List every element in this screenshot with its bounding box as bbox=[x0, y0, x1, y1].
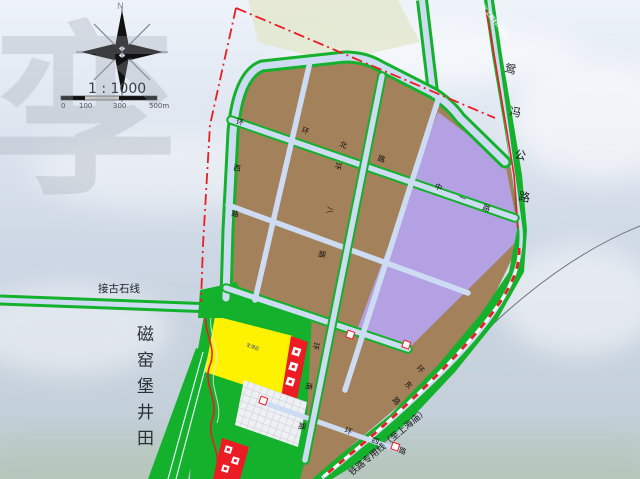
scale-tick-500: 500m bbox=[149, 102, 169, 110]
scale-tick-300: 300 bbox=[113, 102, 126, 110]
minefield-label: 田 bbox=[137, 429, 154, 449]
minefield-label: 堡 bbox=[137, 377, 154, 397]
scale-tick-100: 100 bbox=[79, 102, 92, 110]
scale-tick-0: 0 bbox=[61, 102, 65, 110]
jiegushi-line-label: 接古石线 bbox=[98, 282, 140, 295]
minefield-label: 窑 bbox=[137, 351, 154, 371]
highway-label: 冯 bbox=[508, 104, 522, 120]
compass-north-label: N bbox=[117, 2, 124, 12]
scale-ratio: 1 : 1000 bbox=[88, 81, 146, 97]
planning-map: 孪N1 : 10000100300500m磁窑堡井田接古石线鸳冯公路化工原料林园… bbox=[0, 0, 640, 479]
watermark-char: 孪 bbox=[0, 6, 177, 222]
minefield-label: 磁 bbox=[137, 325, 154, 345]
minefield-label: 井 bbox=[137, 403, 154, 423]
